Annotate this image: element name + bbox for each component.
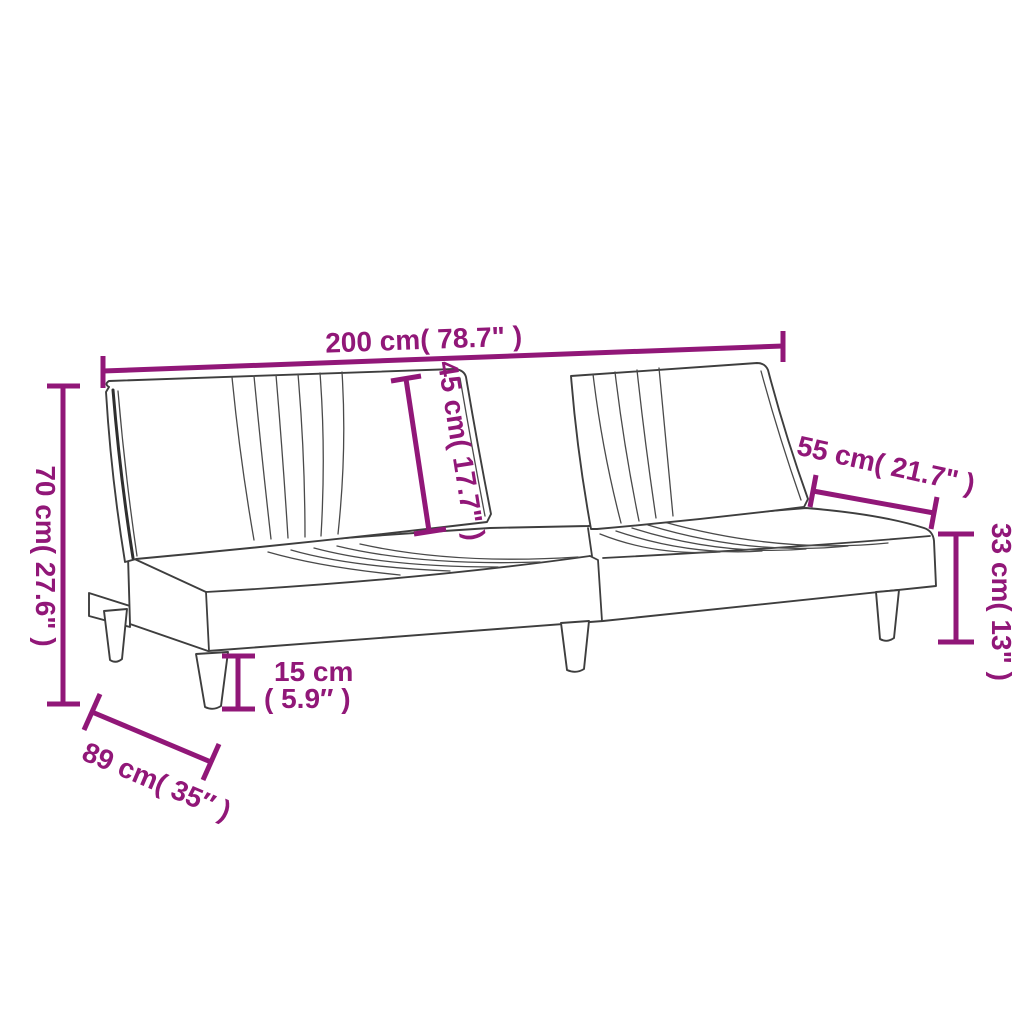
- front-left-leg: [196, 652, 228, 709]
- dim-seatdepth-tick-right: [931, 497, 937, 529]
- dim-height-label: 70 cm( 27.6" ): [30, 465, 61, 646]
- dimension-overall-height: 70 cm( 27.6" ): [30, 386, 80, 704]
- sofa-drawing: [89, 363, 936, 709]
- front-right-leg: [876, 590, 899, 641]
- dim-seatdepth-tick-left: [810, 475, 816, 507]
- dimension-seat-height: 33 cm( 13" ): [938, 523, 1017, 681]
- dim-seatdepth-label: 55 cm( 21.7" ): [794, 430, 978, 500]
- diagram-canvas: 200 cm( 78.7" ) 70 cm( 27.6" ) 45 cm( 17…: [0, 0, 1024, 1024]
- dimension-overall-depth: 89 cm( 35″ ): [78, 694, 236, 826]
- dim-seatheight-label: 33 cm( 13" ): [986, 523, 1017, 681]
- right-backrest: [571, 363, 808, 529]
- front-middle-leg: [561, 621, 589, 672]
- dim-width-label: 200 cm( 78.7" ): [325, 320, 523, 358]
- dim-depth-label: 89 cm( 35″ ): [78, 736, 236, 826]
- dimension-diagram-svg: 200 cm( 78.7" ) 70 cm( 27.6" ) 45 cm( 17…: [0, 0, 1024, 1024]
- rear-left-leg: [104, 609, 127, 662]
- dim-leg-label-inch: ( 5.9″ ): [264, 683, 351, 714]
- dimension-leg-height: 15 cm ( 5.9″ ): [222, 656, 353, 714]
